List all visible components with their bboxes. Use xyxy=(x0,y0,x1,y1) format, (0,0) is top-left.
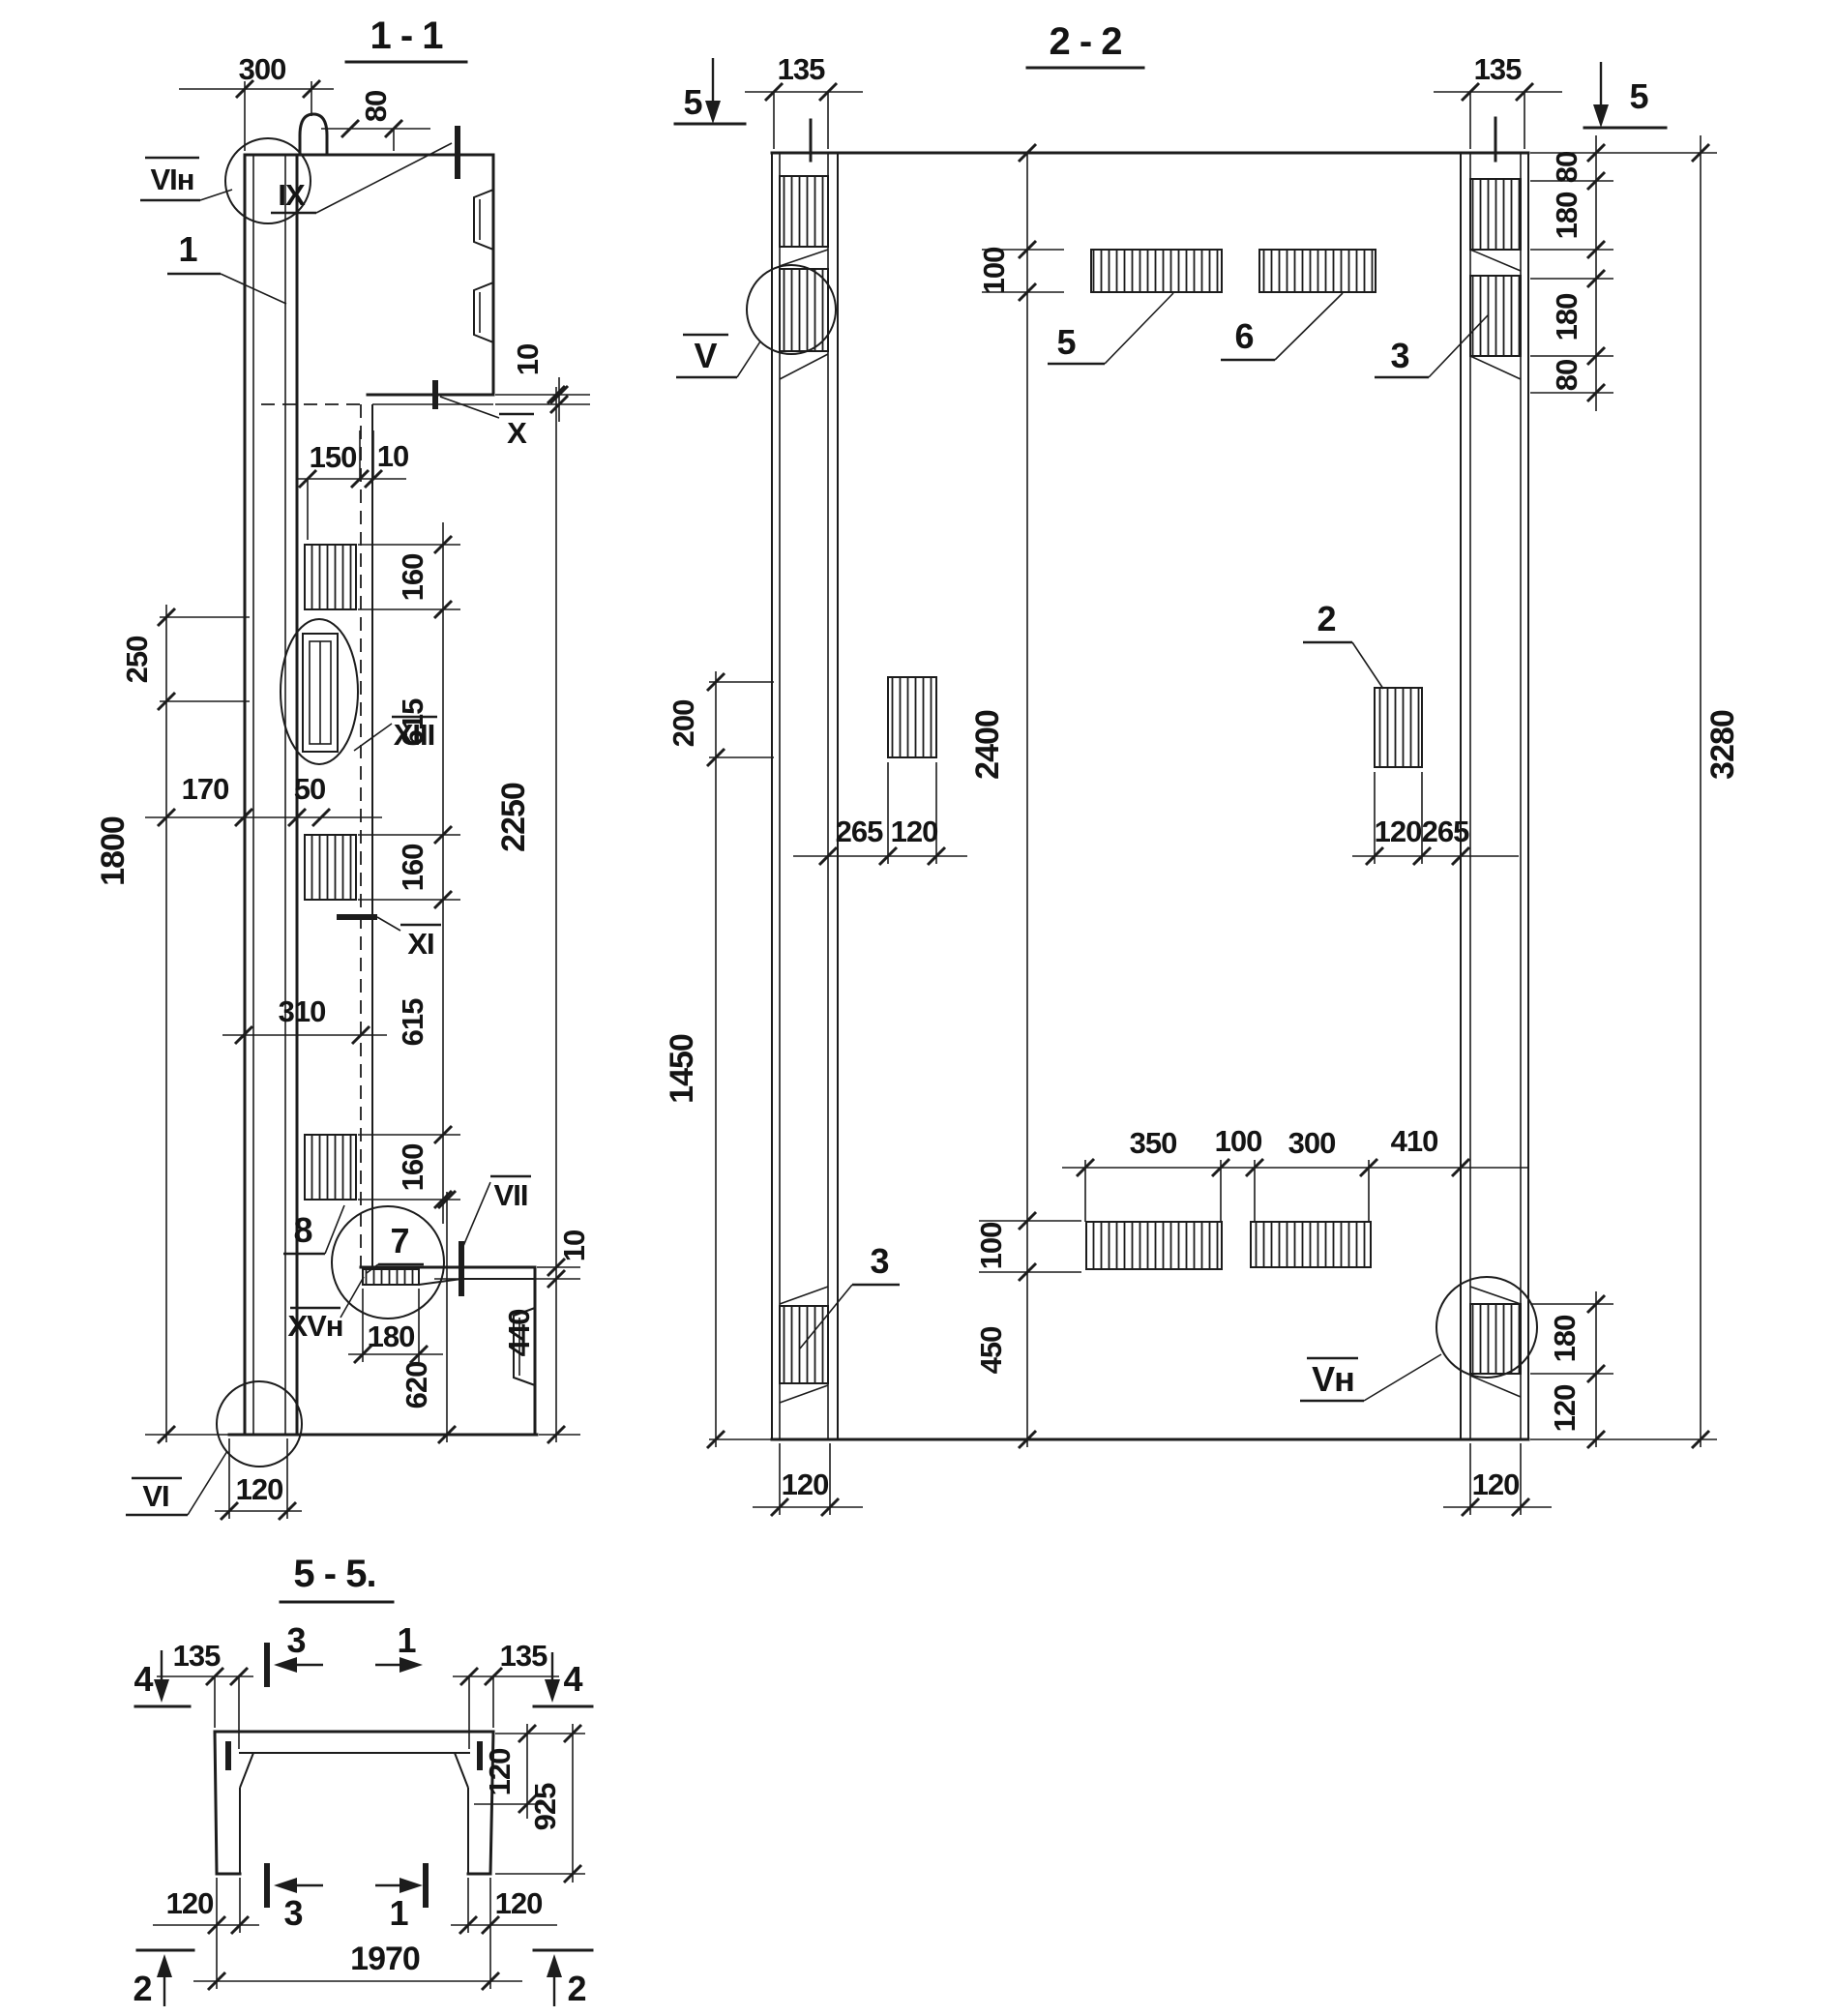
embed-plate-hatch xyxy=(305,1135,356,1200)
dim-120: 120 xyxy=(236,1472,283,1506)
dim-410: 410 xyxy=(1391,1124,1438,1158)
marker-1-top: 1 xyxy=(397,1620,416,1660)
dim-120-bot-left: 120 xyxy=(782,1468,829,1501)
dim-440: 440 xyxy=(502,1310,536,1357)
marker-3-top: 3 xyxy=(286,1620,305,1660)
dim-150-10-group: 150 10 xyxy=(298,430,408,540)
dim-10-mid: 10 xyxy=(377,439,408,473)
dim-450: 450 xyxy=(974,1327,1008,1375)
callout-1: 1 xyxy=(178,229,197,269)
dim-120-bot-right: 120 xyxy=(1472,1468,1520,1501)
dim-615-b: 615 xyxy=(396,998,429,1046)
dim-1970: 1970 xyxy=(350,1941,420,1977)
dim-300: 300 xyxy=(1288,1126,1336,1160)
dim-50: 50 xyxy=(294,772,325,806)
callout-8-group: 8 xyxy=(283,1205,344,1254)
dim-925: 925 xyxy=(528,1783,562,1830)
dim-120-slab: 120 xyxy=(483,1749,517,1796)
dim-135-right-55-group: 135 xyxy=(453,1639,559,1749)
dim-135-right: 135 xyxy=(1474,52,1522,86)
dim-10-top: 10 xyxy=(511,344,545,375)
blueprint-page: 1 - 1 xyxy=(0,0,1835,2016)
embed-strip-hatch xyxy=(363,1269,419,1285)
label-vii: VII xyxy=(494,1178,528,1212)
label-v-n-group: Vн xyxy=(1300,1354,1441,1401)
dim-180-b: 180 xyxy=(1550,294,1583,341)
marker-5-right-group: 5 xyxy=(1584,62,1666,128)
dim-120-bot-left-group: 120 xyxy=(753,1443,863,1516)
label-vi-group: VI xyxy=(126,1451,227,1515)
marker-3-bot: 3 xyxy=(283,1893,302,1933)
wall-embeds xyxy=(747,176,1537,1403)
dim-80: 80 xyxy=(359,91,393,122)
dim-10-bot: 10 xyxy=(557,1230,591,1261)
embed-plate-hatch xyxy=(1259,250,1376,292)
dim-left-chain-group: 250 1800 xyxy=(95,605,250,1443)
marker-2-right-group: 2 xyxy=(534,1950,592,2008)
dim-120-bot-right-group: 120 xyxy=(1443,1443,1552,1516)
callout-2-group: 2 xyxy=(1303,599,1383,689)
section-5-5: 5 - 5. 135 135 xyxy=(133,1553,592,2008)
callout-7-group: 7 xyxy=(367,1221,424,1273)
label-xi: XI xyxy=(407,927,433,961)
dim-150: 150 xyxy=(310,440,357,474)
dim-350: 350 xyxy=(1130,1126,1177,1160)
dim-3280: 3280 xyxy=(1704,710,1741,780)
embed-plate-hatch xyxy=(1086,1222,1222,1269)
callout-8: 8 xyxy=(293,1210,311,1250)
marker-2-left: 2 xyxy=(133,1969,151,2008)
callout-6-group: 6 xyxy=(1221,293,1343,360)
marker-1-bot-group: 1 xyxy=(375,1863,426,1933)
callout-3-left: 3 xyxy=(870,1241,888,1281)
column-outline xyxy=(229,114,537,1435)
label-v: V xyxy=(694,336,717,375)
drawing-canvas: 1 - 1 xyxy=(0,0,1835,2016)
dim-1970-group: 1970 xyxy=(193,1941,522,1990)
callout-2: 2 xyxy=(1317,599,1335,638)
callout-1-group: 1 xyxy=(167,229,286,304)
dim-80-group: 80 xyxy=(321,91,430,151)
marker-4-left: 4 xyxy=(133,1659,153,1699)
dim-160-a: 160 xyxy=(396,554,429,602)
callout-5: 5 xyxy=(1056,322,1076,362)
dim-925-group: 925 xyxy=(495,1724,585,1883)
dim-350-100-300-410-group: 350 100 300 410 xyxy=(1062,1124,1528,1222)
section-2-2: 2 - 2 xyxy=(664,20,1741,1516)
dim-180: 180 xyxy=(368,1319,415,1353)
channel-outline xyxy=(215,1732,493,1874)
dim-120-265-right-group: 120 265 xyxy=(1352,772,1519,865)
dim-135-left-55-group: 135 xyxy=(157,1639,253,1749)
dim-120-low: 120 xyxy=(1548,1385,1582,1433)
dim-200: 200 xyxy=(666,700,700,748)
section-5-5-title: 5 - 5. xyxy=(293,1553,375,1595)
section-1-1-title: 1 - 1 xyxy=(370,15,443,57)
label-vi-n-group: VIн xyxy=(140,158,232,200)
dim-right-chain-top-group: 80 180 180 80 xyxy=(1530,135,1717,411)
dim-1450: 1450 xyxy=(664,1034,700,1104)
dim-300-group: 300 xyxy=(179,52,334,151)
detail-circle-7 xyxy=(332,1206,444,1319)
marker-3-bot-group: 3 xyxy=(267,1863,323,1933)
dim-80-b: 80 xyxy=(1550,360,1583,391)
dim-120-bot-right-55: 120 xyxy=(495,1886,543,1920)
dim-265-left: 265 xyxy=(836,815,883,848)
dim-right-chain-bottom-group: 180 120 xyxy=(1530,1291,1613,1448)
marker-2-right: 2 xyxy=(567,1969,585,2008)
section-1-1: 1 - 1 xyxy=(95,15,591,1520)
label-xv-n: XVн xyxy=(287,1309,342,1343)
callout-6: 6 xyxy=(1234,316,1253,356)
dim-310: 310 xyxy=(279,994,326,1028)
callout-5-group: 5 xyxy=(1048,293,1173,364)
marker-1-bot: 1 xyxy=(389,1893,408,1933)
marker-5-left: 5 xyxy=(683,82,702,122)
label-v-n: Vн xyxy=(1312,1359,1354,1399)
dim-170: 170 xyxy=(182,772,229,806)
dim-1800: 1800 xyxy=(95,816,132,886)
callout-7: 7 xyxy=(390,1221,408,1260)
marker-3-top-group: 3 xyxy=(267,1620,323,1687)
dim-615-a: 615 xyxy=(396,698,429,746)
dim-120-bot-right-55-group: 120 xyxy=(451,1878,557,1989)
dim-100-low: 100 xyxy=(974,1223,1008,1270)
dim-310-group: 310 xyxy=(222,994,387,1044)
dim-170-50-group: 170 50 xyxy=(145,772,382,826)
label-xi-group: XI xyxy=(377,917,441,961)
oval-opening xyxy=(281,619,358,764)
dim-10-top-group: 10 xyxy=(495,344,590,422)
dim-135-left-group: 135 xyxy=(745,52,863,149)
marker-5-right: 5 xyxy=(1629,76,1648,116)
marker-4-right: 4 xyxy=(563,1659,582,1699)
dim-2250: 2250 xyxy=(495,783,532,852)
label-x: X xyxy=(507,416,527,450)
label-xv-n-group: XVн xyxy=(287,1277,364,1343)
embed-plate-hatch xyxy=(1251,1222,1371,1267)
dim-135-left: 135 xyxy=(778,52,825,86)
callout-3-right: 3 xyxy=(1390,336,1408,375)
marker-2-left-group: 2 xyxy=(133,1950,193,2008)
dim-120-left: 120 xyxy=(891,815,938,848)
dim-180-low: 180 xyxy=(1548,1316,1582,1363)
dim-160-c: 160 xyxy=(396,1144,429,1192)
embed-plate-hatch xyxy=(1375,688,1422,767)
marker-1-top-group: 1 xyxy=(375,1620,426,1687)
dim-620: 620 xyxy=(400,1362,433,1409)
label-ix: IX xyxy=(278,178,306,212)
embed-plate-hatch xyxy=(888,677,936,757)
dim-160-b: 160 xyxy=(396,845,429,892)
embed-plate-hatch xyxy=(305,835,356,900)
label-vii-group: VII xyxy=(463,1176,531,1246)
dim-265-120-left-group: 265 120 xyxy=(793,762,967,865)
dim-100-top: 100 xyxy=(977,248,1011,295)
dim-135-right-group: 135 xyxy=(1434,52,1562,149)
embed-plate-hatch xyxy=(305,545,356,609)
dim-135-left-55: 135 xyxy=(173,1639,221,1673)
dim-250: 250 xyxy=(120,637,154,684)
dim-300: 300 xyxy=(239,52,286,86)
dim-100-mid: 100 xyxy=(1215,1124,1262,1158)
marker-5-left-group: 5 xyxy=(675,58,745,124)
section-2-2-title: 2 - 2 xyxy=(1049,20,1121,63)
dim-80-a: 80 xyxy=(1550,152,1583,183)
dim-2400: 2400 xyxy=(969,710,1006,780)
label-vi-n: VIн xyxy=(150,163,193,196)
dim-120-group: 120 xyxy=(215,1438,302,1520)
dim-265-right: 265 xyxy=(1422,815,1469,848)
label-v-group: V xyxy=(676,335,760,377)
dim-120-bot-left-55: 120 xyxy=(166,1886,214,1920)
label-vi: VI xyxy=(142,1479,168,1513)
embed-plate-hatch xyxy=(1091,250,1222,292)
dim-120-right: 120 xyxy=(1375,815,1422,848)
dim-180-a: 180 xyxy=(1550,193,1583,240)
dim-135-right-55: 135 xyxy=(500,1639,548,1673)
dim-200-1450-group: 200 1450 xyxy=(664,671,774,1448)
